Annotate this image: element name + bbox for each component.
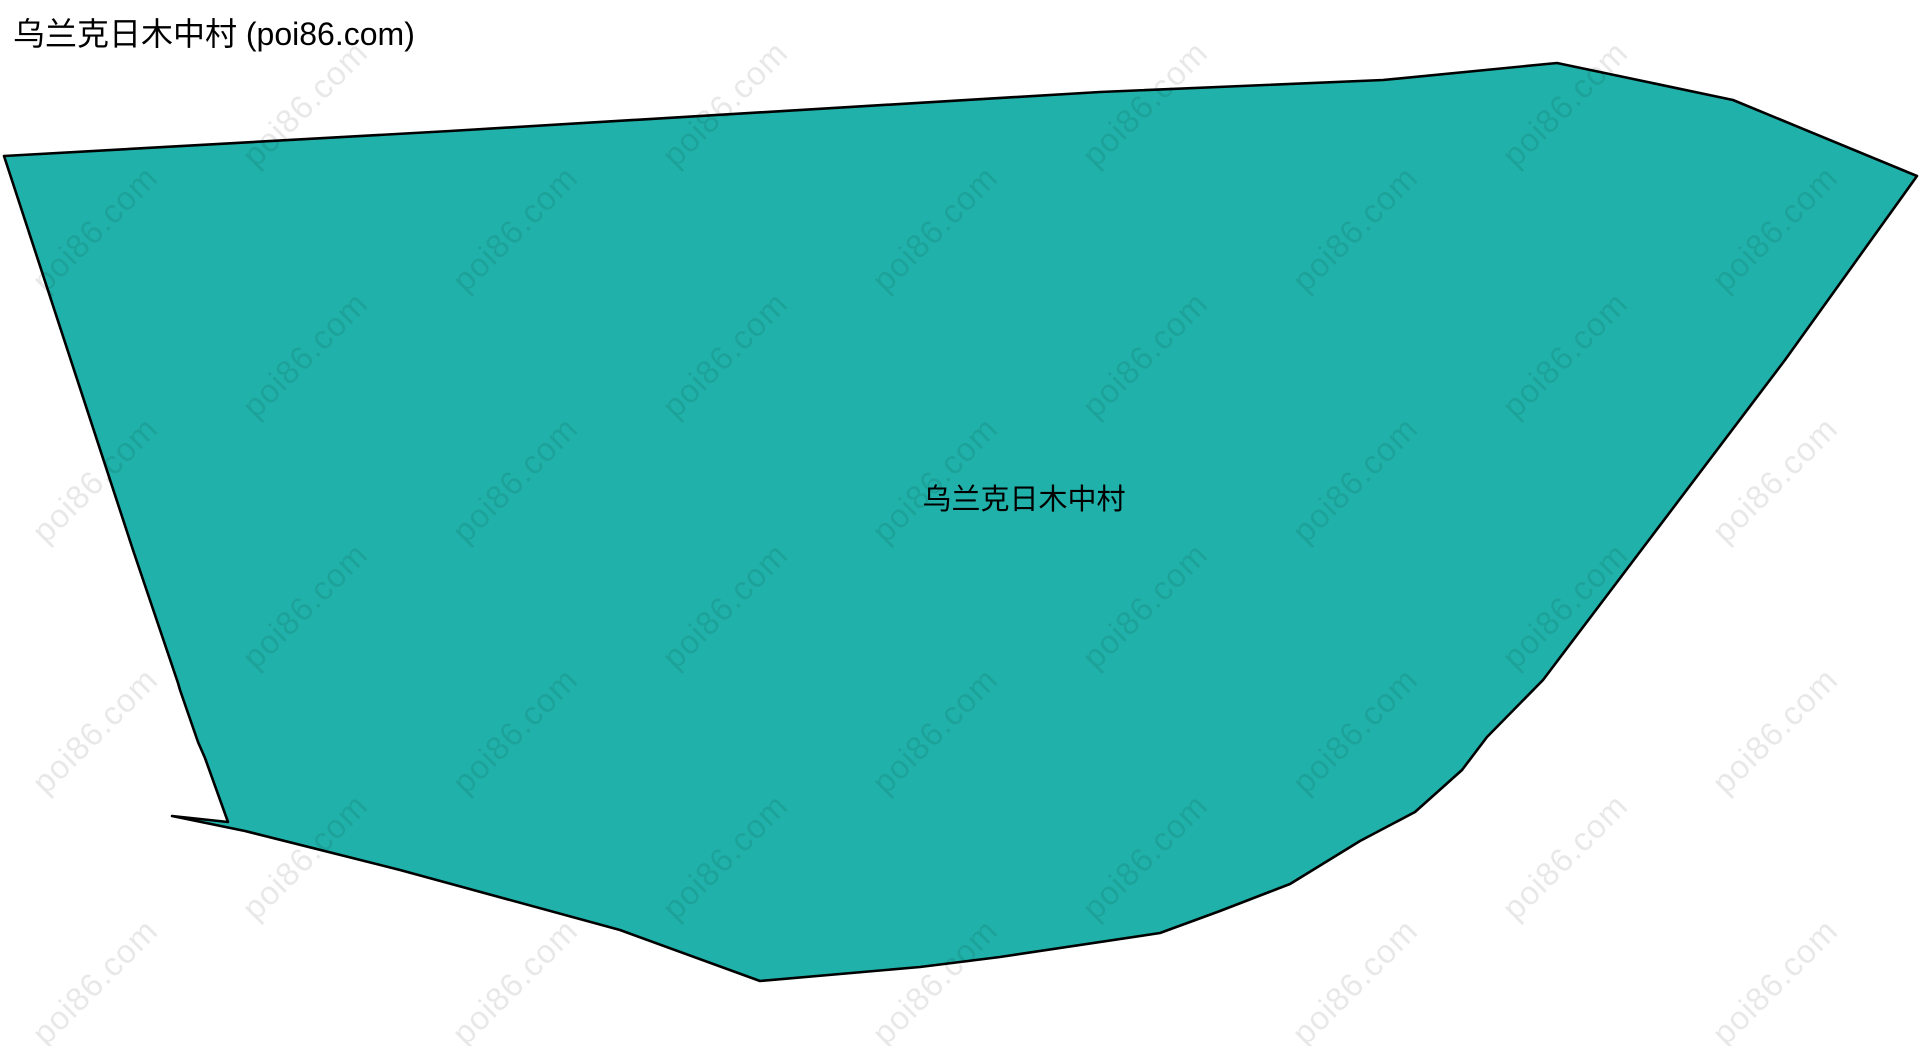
map-canvas: poi86.compoi86.compoi86.compoi86.compoi8… xyxy=(0,0,1920,1046)
region-map-svg xyxy=(0,0,1920,1046)
region-label: 乌兰克日木中村 xyxy=(922,476,1125,518)
page-title: 乌兰克日木中村 (poi86.com) xyxy=(13,9,415,55)
region-polygon[interactable] xyxy=(4,63,1917,981)
